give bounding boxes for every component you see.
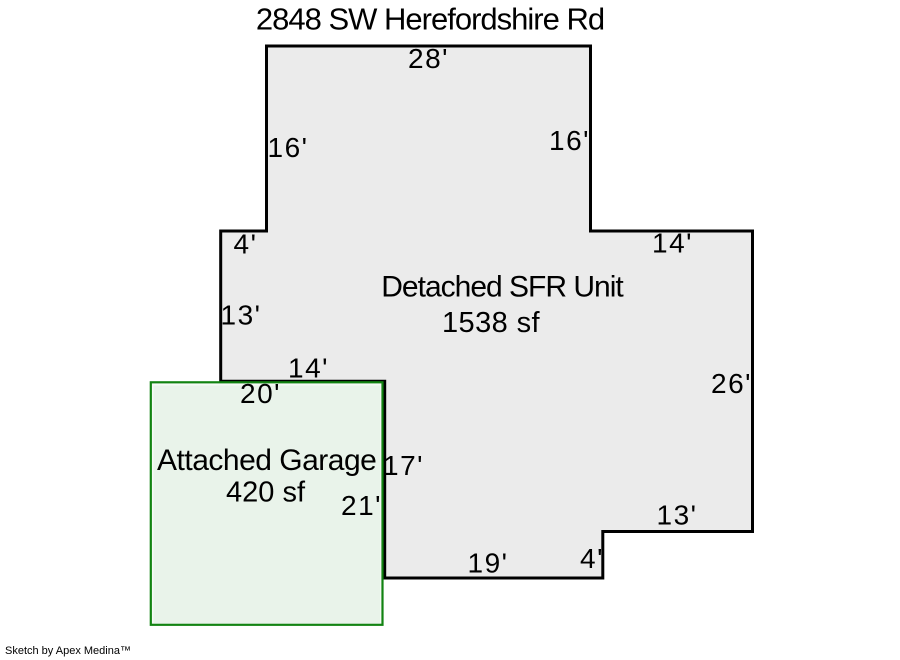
svg-text:16': 16'	[549, 125, 590, 156]
svg-text:4': 4'	[580, 543, 604, 574]
svg-text:21': 21'	[341, 490, 382, 521]
svg-text:14': 14'	[652, 228, 693, 259]
svg-text:2848 SW Herefordshire Rd: 2848 SW Herefordshire Rd	[256, 2, 604, 37]
svg-text:420 sf: 420 sf	[226, 477, 306, 509]
svg-text:Sketch by Apex Medina™: Sketch by Apex Medina™	[5, 645, 131, 657]
svg-text:17': 17'	[383, 450, 424, 481]
svg-text:14': 14'	[288, 353, 329, 384]
svg-text:Detached SFR Unit: Detached SFR Unit	[381, 271, 624, 304]
svg-text:16': 16'	[268, 132, 309, 163]
svg-text:13': 13'	[221, 300, 262, 331]
svg-text:19': 19'	[468, 547, 509, 578]
svg-text:4': 4'	[234, 229, 258, 260]
svg-text:26': 26'	[711, 368, 752, 399]
svg-text:1538 sf: 1538 sf	[442, 307, 540, 339]
svg-text:13': 13'	[657, 500, 698, 531]
svg-text:20': 20'	[240, 378, 281, 409]
svg-text:28': 28'	[408, 43, 449, 74]
svg-text:Attached Garage: Attached Garage	[157, 444, 376, 477]
